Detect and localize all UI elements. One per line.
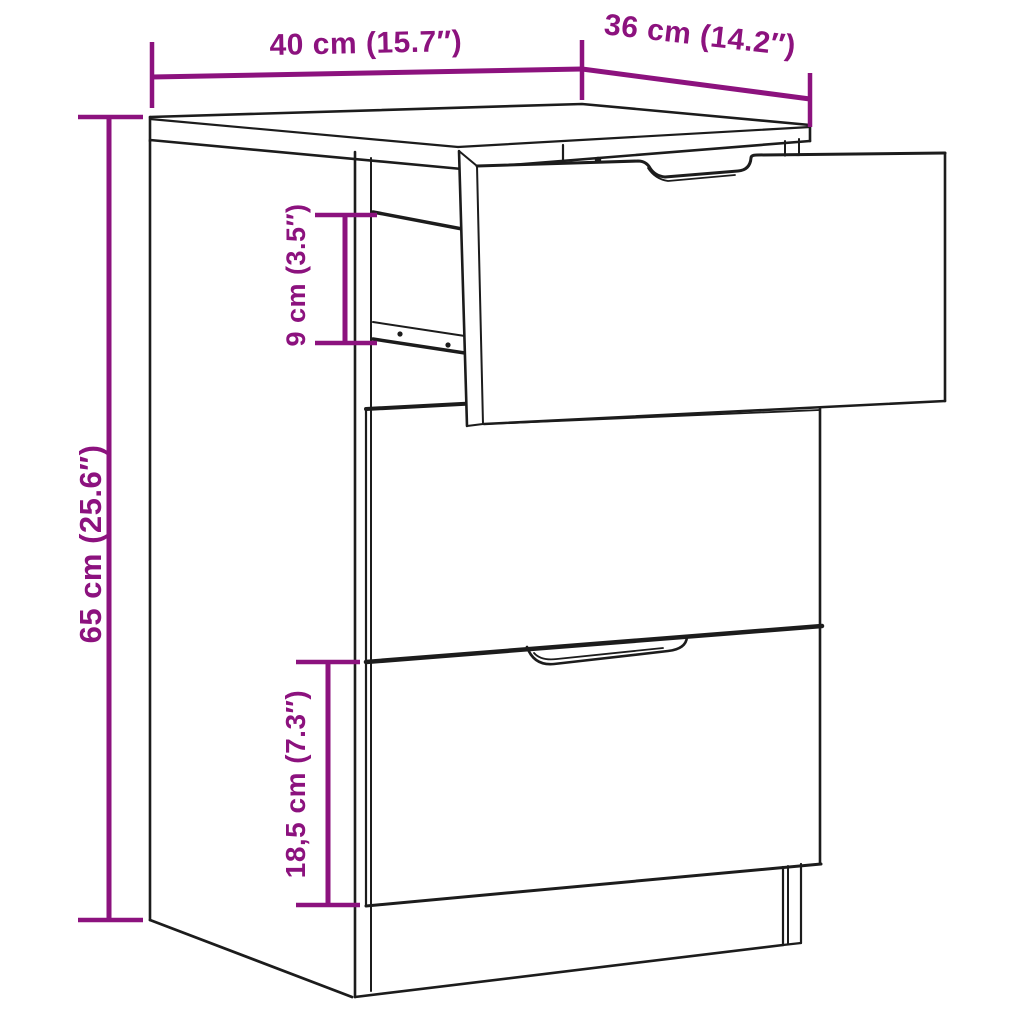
screw-hole	[445, 342, 450, 347]
dimension-width-label: 40 cm (15.7″)	[269, 25, 462, 62]
dimension-bottom-drawer-height-label: 18,5 cm (7.3″)	[280, 690, 311, 879]
legs	[783, 864, 801, 945]
open-top-drawer	[459, 151, 945, 426]
screw-hole	[397, 331, 402, 336]
bottom-drawer	[366, 626, 822, 664]
dimension-width: 40 cm (15.7″)	[152, 25, 582, 108]
middle-drawer-top-edge	[366, 403, 480, 409]
bottom-rail	[373, 339, 478, 355]
dimension-drawer-side-height: 9 cm (3.5″)	[281, 204, 377, 347]
nightstand-drawing: 40 cm (15.7″) 36 cm (14.2″) 65 cm (25.6″…	[0, 0, 1024, 1024]
dimension-diagram: 40 cm (15.7″) 36 cm (14.2″) 65 cm (25.6″…	[0, 0, 1024, 1024]
dimension-depth: 36 cm (14.2″)	[582, 8, 810, 127]
carcass-bottom-edge	[366, 864, 821, 906]
dimension-depth-label: 36 cm (14.2″)	[603, 8, 798, 63]
dimension-height: 65 cm (25.6″)	[73, 117, 143, 920]
dimension-height-label: 65 cm (25.6″)	[73, 445, 108, 644]
cam-lock-dot	[595, 157, 601, 163]
dimension-drawer-side-height-label: 9 cm (3.5″)	[281, 204, 311, 347]
drawer-gap-line	[366, 626, 822, 662]
left-panel-bottom-edge	[150, 920, 352, 997]
plinth-bottom-edge	[355, 945, 783, 997]
dimension-bottom-drawer-height: 18,5 cm (7.3″)	[280, 662, 360, 905]
